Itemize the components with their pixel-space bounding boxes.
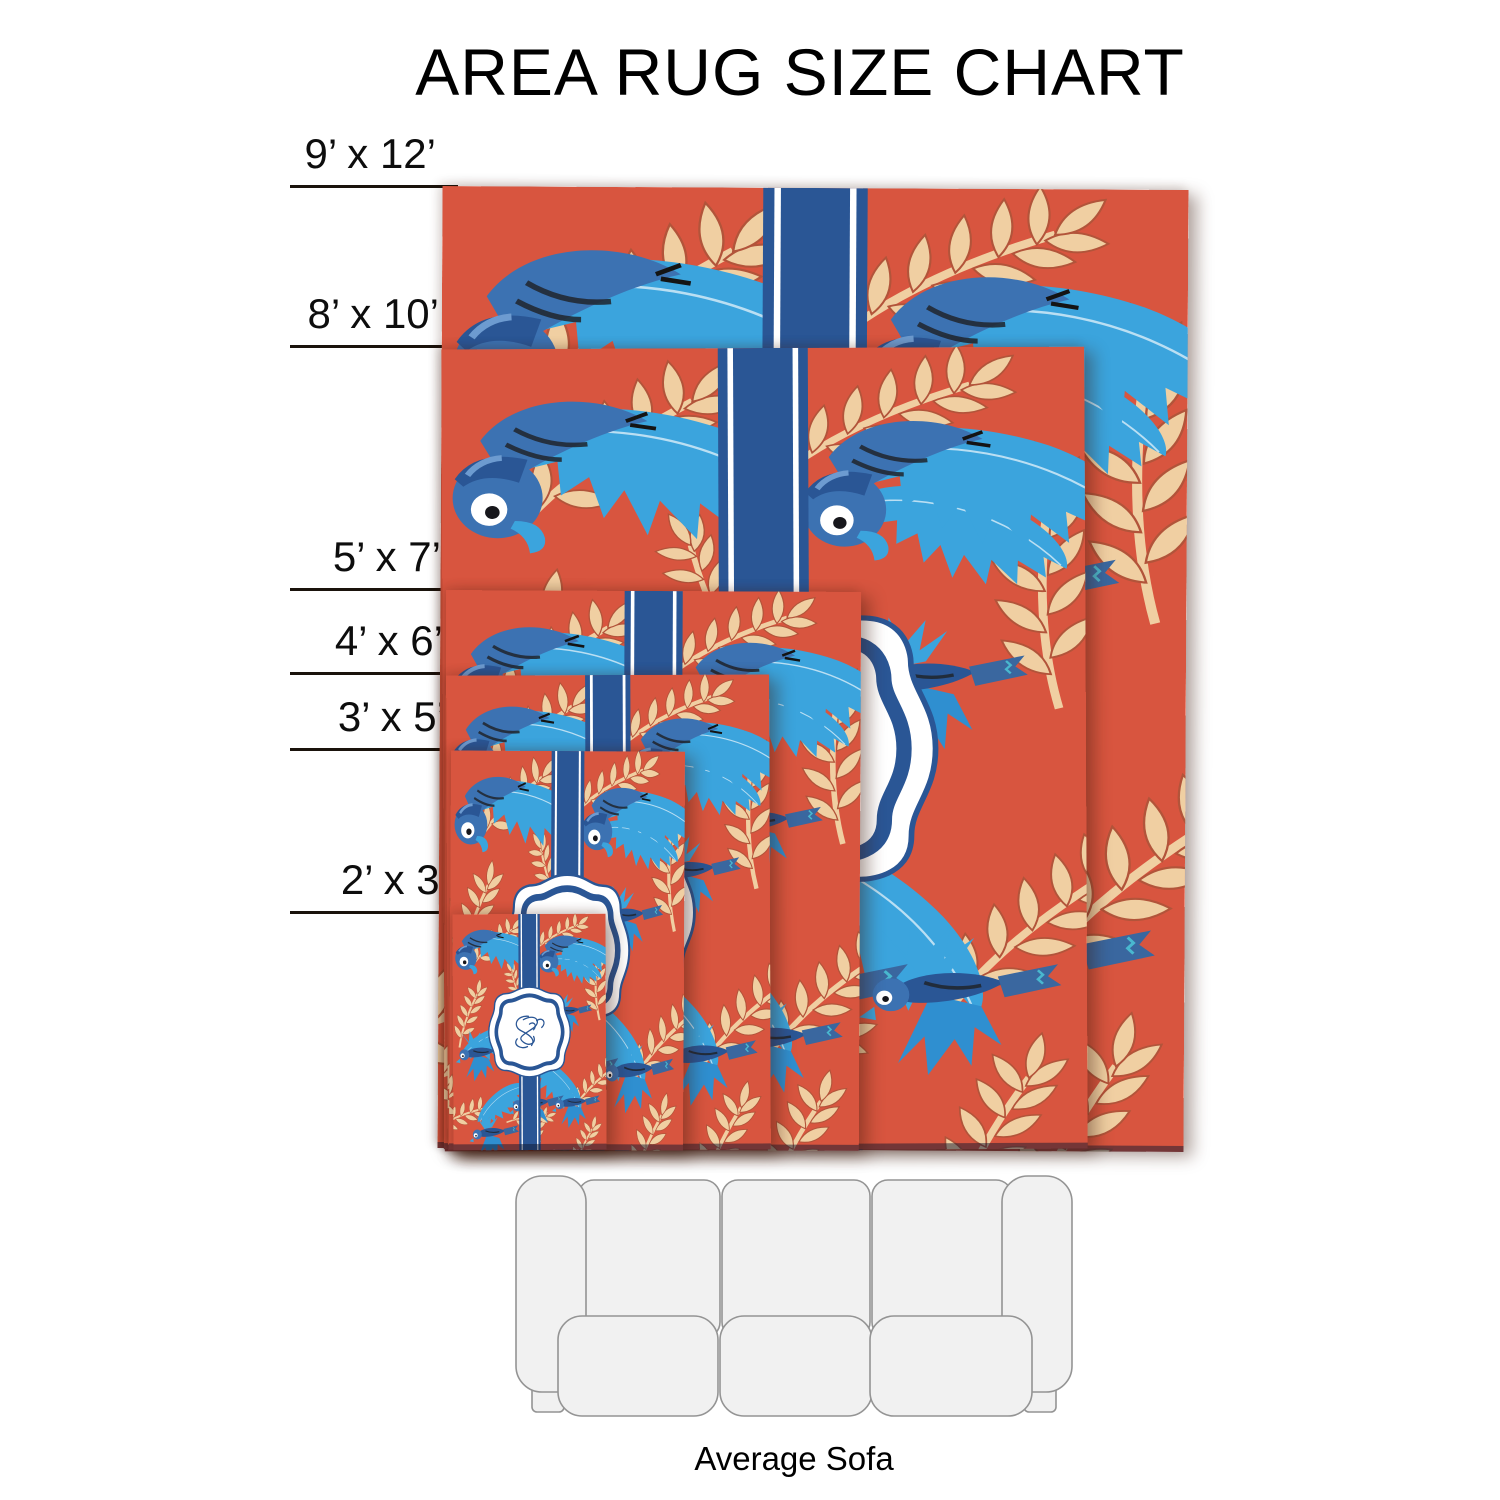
rug-size-chart: AREA RUG SIZE CHART 9’ x 12’8’ x 10’5’ x… [0, 0, 1500, 1500]
size-label-5x7: 5’ x 7’ [333, 533, 441, 581]
sofa-seat-cushion-left [558, 1316, 718, 1416]
rug-artwork-2x3 [452, 914, 606, 1151]
sofa-back-cushion-right [872, 1180, 1012, 1338]
size-line-5x7 [290, 588, 463, 591]
size-line-8x10 [290, 345, 461, 348]
sofa-seat-cushion-middle [720, 1316, 872, 1416]
rug-bottom-edge [453, 1144, 606, 1151]
sofa-back-cushion-middle [722, 1180, 870, 1338]
sofa-label: Average Sofa [514, 1440, 1074, 1478]
size-label-4x6: 4’ x 6’ [335, 617, 443, 665]
size-label-2x3: 2’ x 3’ [341, 856, 449, 904]
sofa-back-cushion-left [578, 1180, 720, 1338]
size-label-3x5: 3’ x 5’ [338, 693, 446, 741]
size-label-8x10: 8’ x 10’ [307, 290, 439, 338]
size-line-4x6 [290, 672, 465, 675]
sofa-illustration [514, 1168, 1074, 1418]
rug-2x3 [452, 914, 606, 1151]
page-title: AREA RUG SIZE CHART [100, 34, 1500, 110]
sofa-seat-cushion-right [870, 1316, 1032, 1416]
size-label-9x12: 9’ x 12’ [304, 130, 436, 178]
size-line-9x12 [290, 185, 458, 188]
